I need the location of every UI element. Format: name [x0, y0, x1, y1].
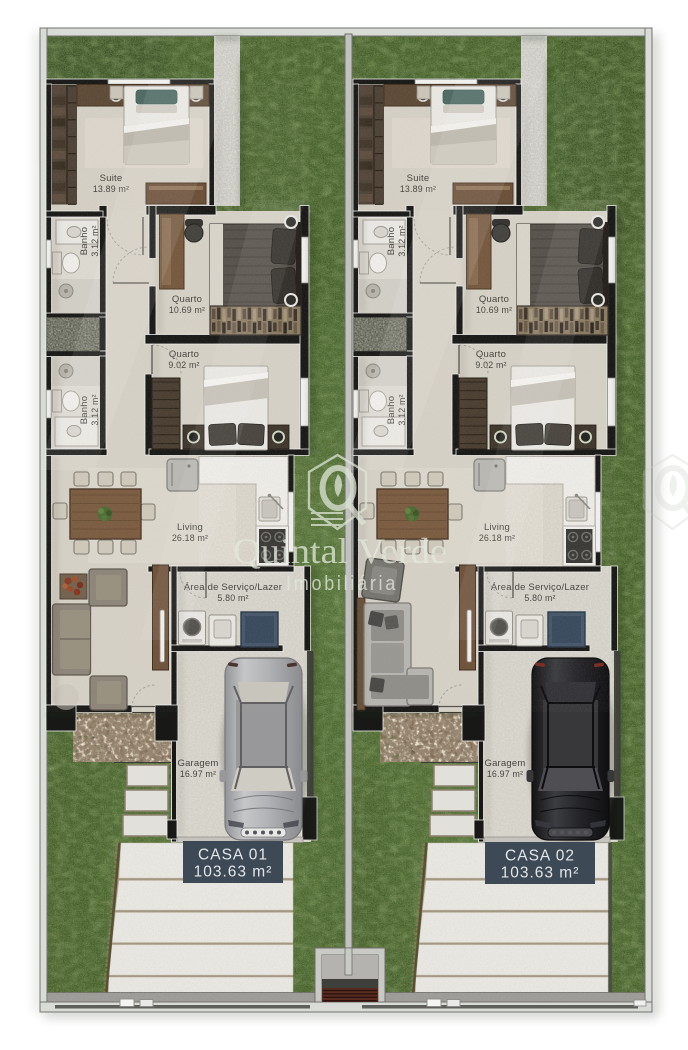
- svg-text:103.63 m²: 103.63 m²: [194, 864, 273, 881]
- svg-text:5.80 m²: 5.80 m²: [524, 593, 555, 603]
- svg-text:16.97 m²: 16.97 m²: [180, 769, 216, 779]
- svg-text:Quintal Verde: Quintal Verde: [233, 531, 447, 571]
- svg-text:16.97 m²: 16.97 m²: [487, 769, 523, 779]
- svg-text:10.69 m²: 10.69 m²: [476, 305, 512, 315]
- svg-text:Suite: Suite: [407, 173, 430, 184]
- svg-text:9.02 m²: 9.02 m²: [475, 360, 506, 370]
- svg-text:9.02 m²: 9.02 m²: [168, 360, 199, 370]
- svg-text:Suite: Suite: [100, 173, 123, 184]
- svg-text:Garagem: Garagem: [484, 758, 525, 769]
- svg-text:10.69 m²: 10.69 m²: [169, 305, 205, 315]
- svg-text:3.12 m²: 3.12 m²: [397, 225, 407, 256]
- svg-text:3.12 m²: 3.12 m²: [90, 225, 100, 256]
- svg-text:Banho: Banho: [79, 227, 90, 255]
- svg-text:Quarto: Quarto: [479, 294, 509, 305]
- svg-text:CASA 01: CASA 01: [198, 847, 268, 864]
- svg-text:5.80 m²: 5.80 m²: [217, 593, 248, 603]
- svg-text:Imobiliária: Imobiliária: [286, 573, 398, 595]
- svg-text:103.63 m²: 103.63 m²: [501, 865, 580, 882]
- svg-text:Quarto: Quarto: [172, 294, 202, 305]
- svg-text:Garagem: Garagem: [177, 758, 218, 769]
- svg-text:Banho: Banho: [386, 227, 397, 255]
- svg-text:CASA 02: CASA 02: [505, 848, 575, 865]
